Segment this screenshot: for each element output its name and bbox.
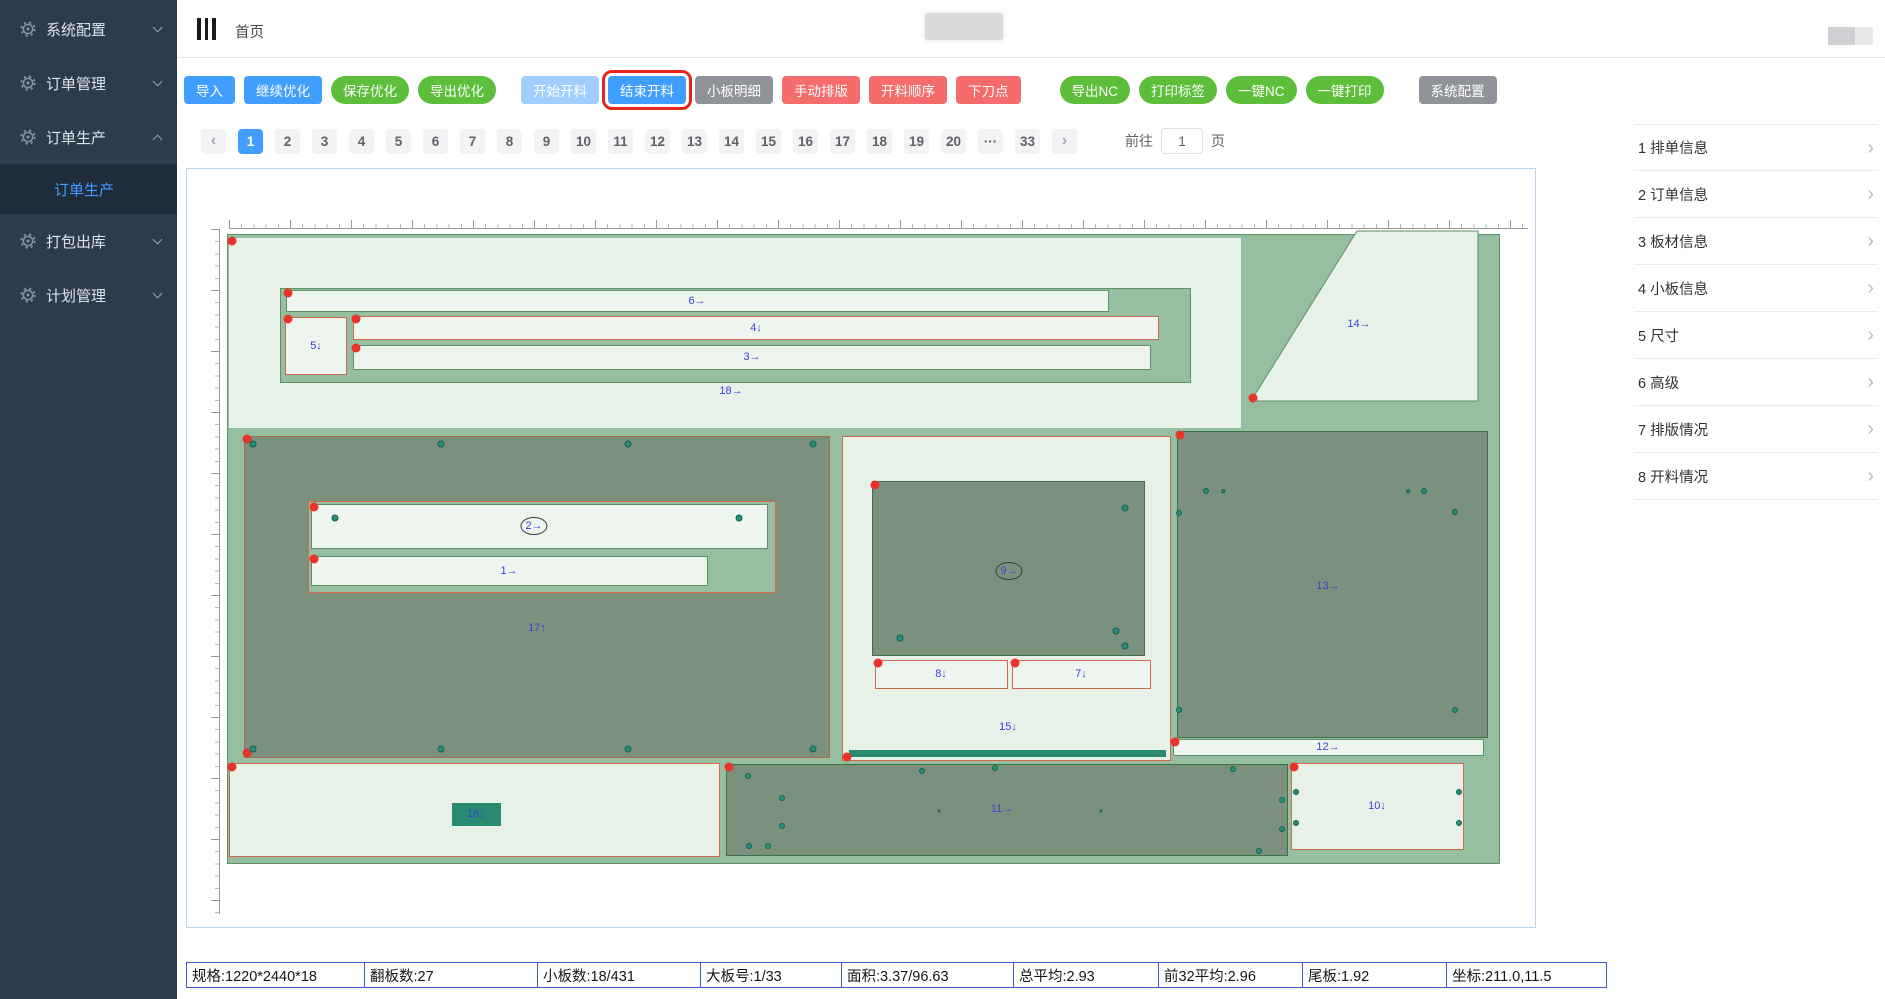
sidebar-item-label: 打包出库 [46, 231, 154, 252]
toolbar-button-11[interactable]: 导出NC [1060, 76, 1131, 104]
drill-hole-dot [1456, 820, 1462, 826]
drill-hole-dot [1452, 707, 1458, 713]
drill-hole-dot [779, 823, 785, 829]
piece-label-5: 5↓ [310, 340, 322, 352]
page-button-10[interactable]: 10 [571, 129, 596, 154]
status-cell-4: 大板号:1/33 [701, 963, 842, 987]
panel-section-4[interactable]: 4 小板信息› [1634, 265, 1878, 312]
status-cell-2: 翻板数:27 [365, 963, 538, 987]
chevron-down-icon [153, 23, 163, 33]
drill-hole-dot [250, 746, 257, 753]
toolbar-button-5[interactable]: 开始开料 [521, 76, 599, 104]
panel-section-label: 6 高级 [1638, 372, 1867, 393]
toolbar-button-7[interactable]: 小板明细 [695, 76, 773, 104]
status-cell-1: 规格:1220*2440*18 [187, 963, 365, 987]
toolbar-button-15[interactable]: 系统配置 [1419, 76, 1497, 104]
drill-hole-dot [992, 765, 998, 771]
panel-section-label: 8 开料情况 [1638, 466, 1867, 487]
drill-hole-dot [625, 746, 632, 753]
drill-hole-dot [1421, 488, 1427, 494]
page-button-20[interactable]: 20 [941, 129, 966, 154]
goto-page-input[interactable] [1161, 128, 1203, 154]
drill-hole-dot [810, 441, 817, 448]
toolbar-button-2[interactable]: 继续优化 [244, 76, 322, 104]
page-button-8[interactable]: 8 [497, 129, 522, 154]
page-button-11[interactable]: 11 [608, 129, 633, 154]
registration-dot [725, 763, 734, 772]
registration-dot [1290, 763, 1299, 772]
drill-hole-dot [938, 810, 941, 813]
drill-hole-dot [1279, 826, 1285, 832]
chevron-right-icon: › [1867, 419, 1874, 439]
drill-hole-dot [779, 795, 785, 801]
chevron-down-icon [153, 235, 163, 245]
chevron-right-icon: › [1867, 184, 1874, 204]
registration-dot [1249, 394, 1258, 403]
sidebar-item-4[interactable]: 打包出库 [0, 214, 177, 268]
vertical-ruler [211, 229, 220, 914]
piece-label-18: 18→ [719, 385, 742, 397]
piece-label-7: 7↓ [1075, 668, 1087, 680]
page-button-16[interactable]: 16 [793, 129, 818, 154]
registration-dot [843, 753, 852, 762]
page-button-9[interactable]: 9 [534, 129, 559, 154]
drill-hole-dot [1293, 789, 1299, 795]
page-button-15[interactable]: 15 [756, 129, 781, 154]
goto-prefix-label: 前往 [1125, 131, 1153, 151]
prev-page-button[interactable]: ‹ [201, 129, 226, 154]
top-bar: 首页 [177, 0, 1885, 58]
drill-hole-dot [1122, 643, 1129, 650]
drill-hole-dot [1452, 509, 1458, 515]
next-page-button[interactable]: › [1052, 129, 1077, 154]
drill-hole-dot [1100, 810, 1103, 813]
sidebar-item-5[interactable]: 计划管理 [0, 268, 177, 322]
drill-hole-dot [1456, 789, 1462, 795]
page-button-13[interactable]: 13 [682, 129, 707, 154]
more-pages-button[interactable]: ··· [978, 129, 1003, 154]
drill-hole-dot [1203, 488, 1209, 494]
drill-hole-dot [1256, 848, 1262, 854]
panel-section-label: 4 小板信息 [1638, 278, 1867, 299]
chevron-down-icon [153, 77, 163, 87]
panel-section-1[interactable]: 1 排单信息› [1634, 124, 1878, 171]
piece-label-15: 15↓ [999, 721, 1017, 733]
status-bar: 规格:1220*2440*18翻板数:27小板数:18/431大板号:1/33面… [186, 962, 1607, 988]
drill-hole-dot [746, 843, 752, 849]
chevron-right-icon: › [1867, 466, 1874, 486]
chevron-right-icon: › [1867, 231, 1874, 251]
toolbar-button-10[interactable]: 下刀点 [956, 76, 1021, 104]
registration-dot [310, 503, 319, 512]
sidebar-item-1[interactable]: 系统配置 [0, 2, 177, 56]
settings-panel: 1 排单信息›2 订单信息›3 板材信息›4 小板信息›5 尺寸›6 高级›7 … [1634, 124, 1878, 500]
panel-section-label: 5 尺寸 [1638, 325, 1867, 346]
toolbar-button-3[interactable]: 保存优化 [331, 76, 409, 104]
chevron-up-icon [153, 134, 163, 144]
registration-dot [228, 237, 237, 246]
page-buttons: ‹1234567891011121314151617181920···33› [201, 129, 1089, 154]
sidebar-item-label: 订单生产 [46, 127, 154, 148]
drill-hole-dot [745, 773, 751, 779]
drill-hole-dot [736, 515, 743, 522]
registration-dot [352, 344, 361, 353]
sidebar-item-2[interactable]: 订单管理 [0, 56, 177, 110]
drill-hole-dot [765, 843, 771, 849]
toolbar-button-1[interactable]: 导入 [184, 76, 235, 104]
panel-section-5[interactable]: 5 尺寸› [1634, 312, 1878, 359]
sidebar: 系统配置订单管理订单生产订单生产打包出库计划管理 [0, 0, 177, 999]
page-button-14[interactable]: 14 [719, 129, 744, 154]
status-cell-9: 坐标:211.0,11.5 [1447, 963, 1606, 987]
sidebar-item-label: 系统配置 [46, 19, 154, 40]
panel-section-7[interactable]: 7 排版情况› [1634, 406, 1878, 453]
registration-dot [284, 289, 293, 298]
piece-label-14: 14→ [1347, 318, 1370, 330]
goto-page: 前往 页 [1125, 128, 1225, 154]
piece-label-1: 1→ [500, 565, 517, 577]
panel-section-2[interactable]: 2 订单信息› [1634, 171, 1878, 218]
panel-section-8[interactable]: 8 开料情况› [1634, 453, 1878, 500]
toolbar-button-13[interactable]: 一键NC [1226, 76, 1297, 104]
piece-label-9: 9→ [995, 562, 1022, 580]
drill-hole-dot [1122, 505, 1129, 512]
page-button-3[interactable]: 3 [312, 129, 337, 154]
piece-label-17: 17↑ [528, 622, 546, 634]
page-button-4[interactable]: 4 [349, 129, 374, 154]
piece-label-16: 16↓ [467, 808, 485, 820]
blurred-region [925, 13, 1003, 40]
piece-label-12: 12→ [1316, 741, 1339, 753]
page-button-7[interactable]: 7 [460, 129, 485, 154]
piece-label-10: 10↓ [1368, 800, 1386, 812]
cut-bar [849, 750, 1166, 757]
page-button-33[interactable]: 33 [1015, 129, 1040, 154]
panel-section-label: 2 订单信息 [1638, 184, 1867, 205]
chevron-down-icon [153, 289, 163, 299]
drill-hole-dot [438, 441, 445, 448]
piece-label-8: 8↓ [935, 668, 947, 680]
registration-dot [874, 659, 883, 668]
registration-dot [352, 315, 361, 324]
toolbar-button-6[interactable]: 结束开料 [608, 76, 686, 104]
registration-dot [228, 763, 237, 772]
gear-icon [20, 287, 36, 303]
drill-hole-dot [1176, 510, 1182, 516]
sidebar-item-label: 订单管理 [46, 73, 154, 94]
gear-icon [20, 75, 36, 91]
drill-hole-dot [1406, 489, 1410, 493]
status-cell-8: 尾板:1.92 [1303, 963, 1447, 987]
page-button-12[interactable]: 12 [645, 129, 670, 154]
panel-section-label: 1 排单信息 [1638, 137, 1867, 158]
drill-hole-dot [919, 768, 925, 774]
piece-label-4: 4↓ [750, 322, 762, 334]
page-button-2[interactable]: 2 [275, 129, 300, 154]
collapse-menu-icon[interactable] [197, 18, 219, 40]
chevron-right-icon: › [1867, 138, 1874, 158]
piece-label-3: 3→ [743, 351, 760, 363]
drill-hole-dot [1221, 489, 1225, 493]
drill-hole-dot [810, 746, 817, 753]
drill-hole-dot [438, 746, 445, 753]
registration-dot [1171, 738, 1180, 747]
piece-label-13: 13→ [1316, 580, 1339, 592]
app-root: { "sidebar": { "bg": "#2e3b4d", "active_… [0, 0, 1885, 999]
status-cell-3: 小板数:18/431 [538, 963, 701, 987]
piece-label-11: 11→ [991, 803, 1013, 815]
nesting-canvas[interactable]: 6→5↓4↓3→18→14→2→1→17↑9→8↓7↓15↓13→12→16↓1… [186, 168, 1536, 928]
drill-hole-dot [1230, 766, 1236, 772]
drill-hole-dot [250, 441, 257, 448]
gear-icon [20, 129, 36, 145]
page-button-6[interactable]: 6 [423, 129, 448, 154]
panel-section-6[interactable]: 6 高级› [1634, 359, 1878, 406]
pagination: ‹1234567891011121314151617181920···33› 前… [201, 127, 1225, 155]
goto-suffix-label: 页 [1211, 131, 1225, 151]
toolbar-button-12[interactable]: 打印标签 [1139, 76, 1217, 104]
toolbar-button-4[interactable]: 导出优化 [418, 76, 496, 104]
page-button-18[interactable]: 18 [867, 129, 892, 154]
page-button-1[interactable]: 1 [238, 129, 263, 154]
status-cell-5: 面积:3.37/96.63 [842, 963, 1014, 987]
registration-dot [310, 555, 319, 564]
gear-icon [20, 21, 36, 37]
page-button-17[interactable]: 17 [830, 129, 855, 154]
panel-section-3[interactable]: 3 板材信息› [1634, 218, 1878, 265]
drill-hole-dot [625, 441, 632, 448]
breadcrumb[interactable]: 首页 [235, 21, 264, 42]
registration-dot [284, 315, 293, 324]
status-cell-6: 总平均:2.93 [1014, 963, 1159, 987]
sidebar-item-3[interactable]: 订单生产 [0, 110, 177, 164]
sidebar-item-label: 计划管理 [46, 285, 154, 306]
drill-hole-dot [332, 515, 339, 522]
piece-label-6: 6→ [688, 295, 705, 307]
registration-dot [1011, 659, 1020, 668]
horizontal-ruler [229, 220, 1528, 229]
toolbar-button-14[interactable]: 一键打印 [1306, 76, 1384, 104]
piece-label-2: 2→ [520, 517, 547, 535]
drill-hole-dot [1293, 820, 1299, 826]
panel-section-label: 3 板材信息 [1638, 231, 1867, 252]
registration-dot [1176, 431, 1185, 440]
drill-hole-dot [1176, 707, 1182, 713]
drill-hole-dot [897, 635, 904, 642]
blurred-region-corner [1828, 27, 1873, 45]
status-cell-7: 前32平均:2.96 [1159, 963, 1303, 987]
chevron-right-icon: › [1867, 325, 1874, 345]
drill-hole-dot [1113, 628, 1120, 635]
page-button-5[interactable]: 5 [386, 129, 411, 154]
toolbar: 导入继续优化保存优化导出优化开始开料结束开料小板明细手动排版开料顺序下刀点导出N… [184, 70, 1506, 110]
toolbar-button-9[interactable]: 开料顺序 [869, 76, 947, 104]
page-button-19[interactable]: 19 [904, 129, 929, 154]
chevron-right-icon: › [1867, 372, 1874, 392]
piece-17[interactable] [244, 436, 830, 758]
registration-dot [871, 481, 880, 490]
sidebar-subitem-active[interactable]: 订单生产 [0, 164, 177, 214]
chevron-right-icon: › [1867, 278, 1874, 298]
gear-icon [20, 233, 36, 249]
panel-section-label: 7 排版情况 [1638, 419, 1867, 440]
drill-hole-dot [1279, 797, 1285, 803]
toolbar-button-8[interactable]: 手动排版 [782, 76, 860, 104]
